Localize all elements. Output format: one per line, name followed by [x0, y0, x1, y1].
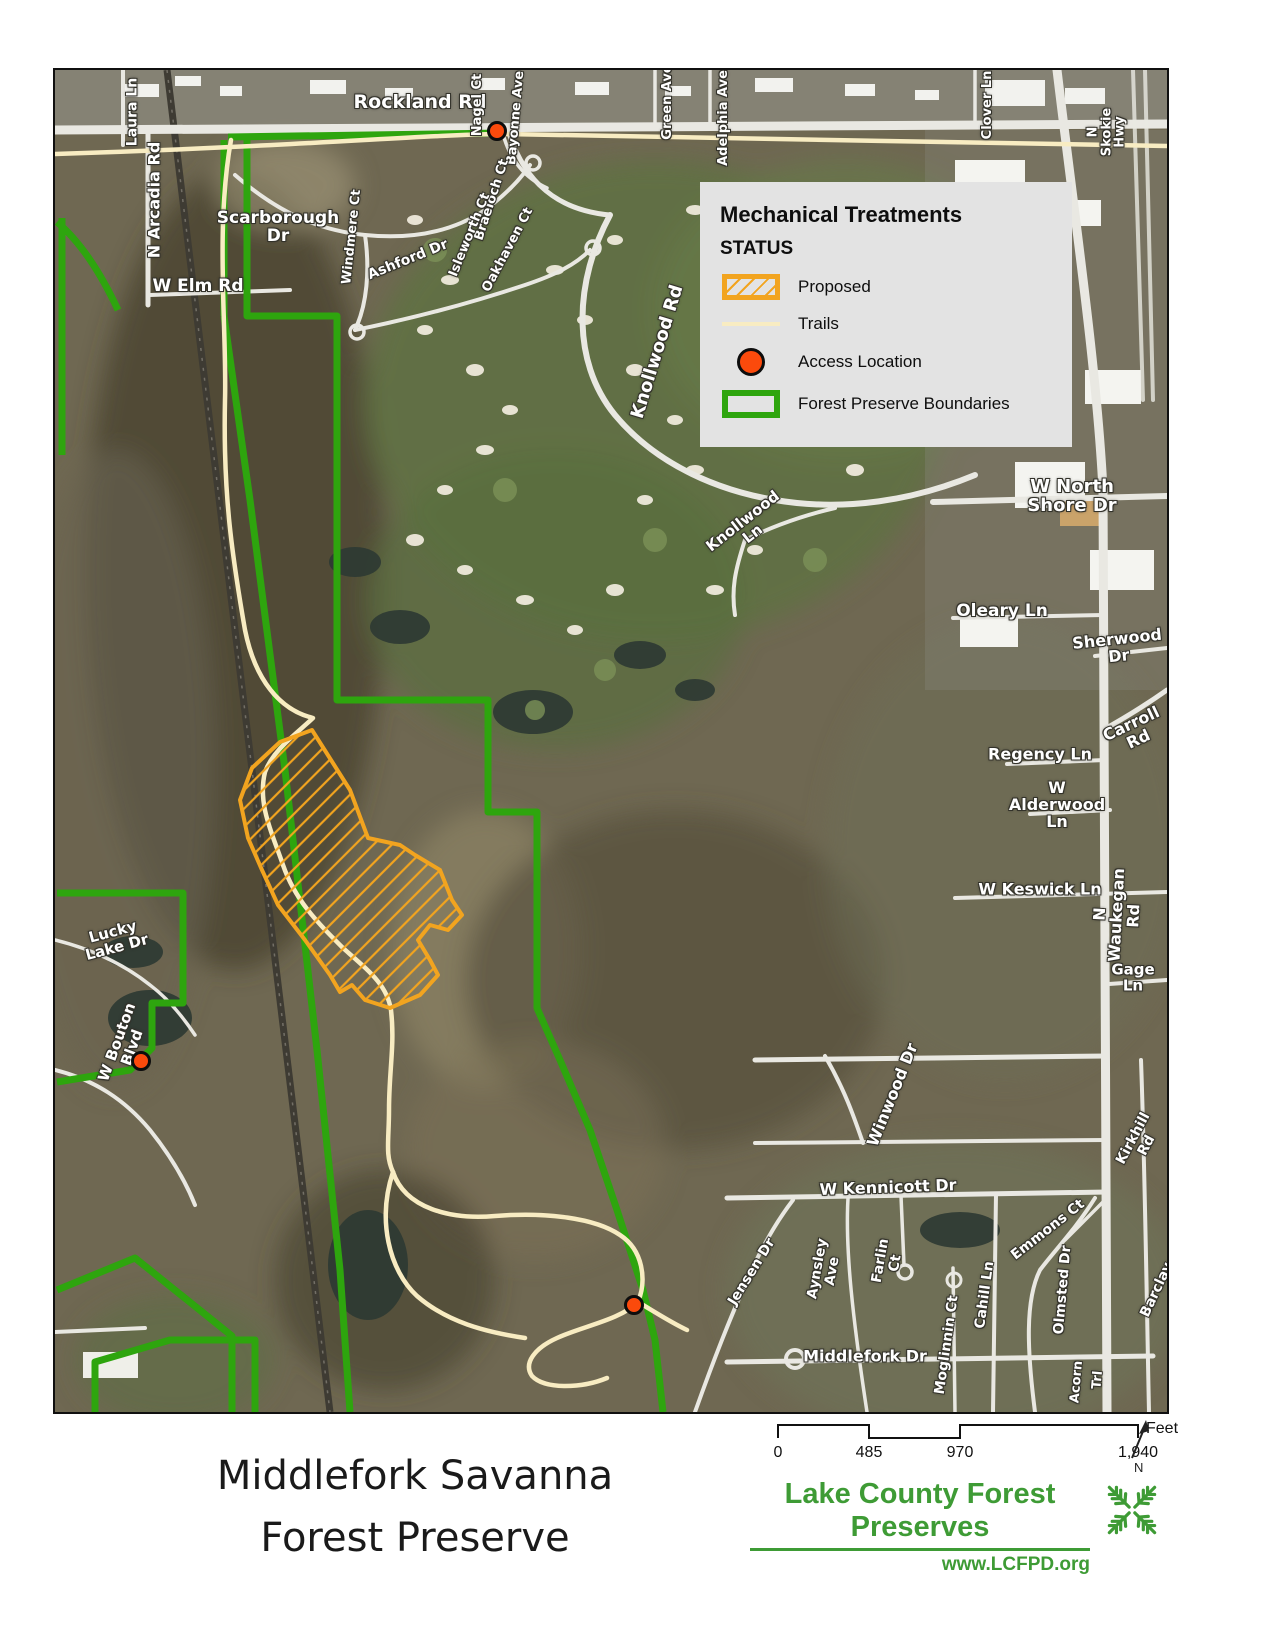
- map-title: Middlefork Savanna Forest Preserve: [120, 1445, 710, 1569]
- access-location-marker: [487, 121, 507, 141]
- map-page: Laura LnRockland RdNagel CtBayonne AveGr…: [0, 0, 1275, 1650]
- leaf-pinwheel-icon: [1094, 1472, 1170, 1553]
- legend-label: Forest Preserve Boundaries: [798, 394, 1010, 414]
- legend-item-boundaries: Forest Preserve Boundaries: [720, 390, 1052, 418]
- legend-label: Trails: [798, 314, 839, 334]
- legend-item-access: Access Location: [720, 348, 1052, 376]
- agency-name: Lake County Forest Preserves: [750, 1478, 1090, 1551]
- proposed-swatch: [722, 274, 780, 300]
- legend-label: Access Location: [798, 352, 922, 372]
- legend-label: Proposed: [798, 277, 871, 297]
- map-title-line2: Forest Preserve: [120, 1507, 710, 1569]
- access-location-swatch: [737, 348, 765, 376]
- legend-subtitle: STATUS: [720, 238, 1052, 260]
- map-title-line1: Middlefork Savanna: [120, 1445, 710, 1507]
- scale-tick-label: 485: [856, 1444, 883, 1462]
- boundary-swatch: [722, 390, 780, 418]
- access-location-marker: [131, 1051, 151, 1071]
- north-arrow: N: [1122, 1418, 1158, 1474]
- agency-logo: Lake County Forest Preserves www.LCFPD.o…: [750, 1478, 1170, 1576]
- agency-url[interactable]: www.LCFPD.org: [750, 1554, 1090, 1576]
- access-location-marker: [624, 1295, 644, 1315]
- legend-title: Mechanical Treatments: [720, 202, 1052, 228]
- scale-tick-label: 0: [774, 1444, 783, 1462]
- trail-swatch: [722, 322, 780, 326]
- legend-item-trails: Trails: [720, 314, 1052, 334]
- legend: Mechanical Treatments STATUS Proposed Tr…: [700, 182, 1072, 447]
- scale-tick-label: 970: [947, 1444, 974, 1462]
- map-canvas: Laura LnRockland RdNagel CtBayonne AveGr…: [53, 68, 1169, 1414]
- legend-item-proposed: Proposed: [720, 274, 1052, 300]
- scale-bar-graphic: [770, 1420, 1170, 1442]
